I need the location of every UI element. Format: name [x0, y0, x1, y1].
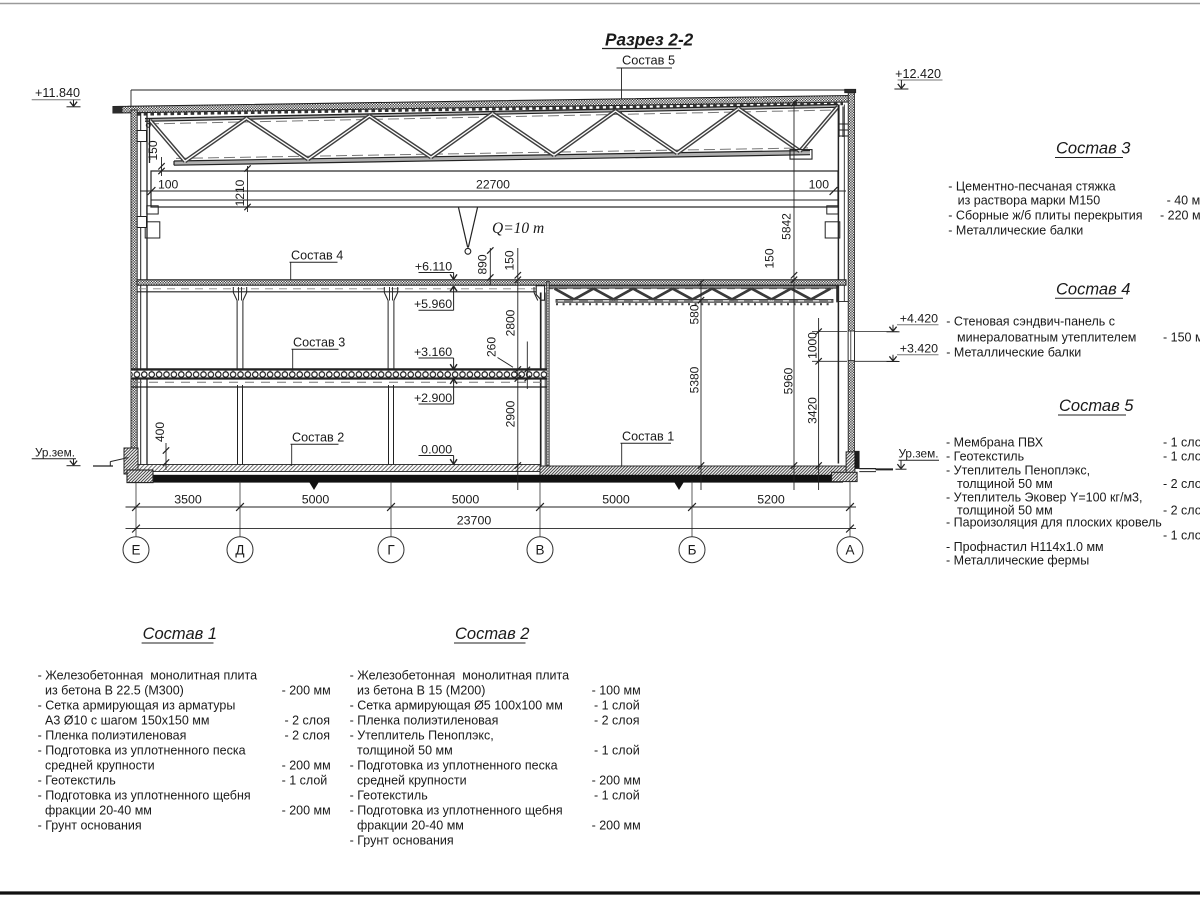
- svg-text:+3.160: +3.160: [414, 345, 452, 359]
- svg-text:5380: 5380: [688, 366, 702, 393]
- svg-text:фракции 20-40 мм: фракции 20-40 мм: [357, 819, 464, 833]
- svg-text:- 1 слой: - 1 слой: [1163, 449, 1200, 463]
- svg-text:100: 100: [809, 178, 830, 192]
- svg-text:Состав 3: Состав 3: [1056, 140, 1131, 158]
- svg-text:5200: 5200: [757, 492, 785, 506]
- svg-text:- 100 мм: - 100 мм: [592, 684, 641, 698]
- svg-text:890: 890: [476, 254, 490, 274]
- svg-text:Состав 5: Состав 5: [1059, 397, 1134, 415]
- svg-text:- Пленка полиэтиленовая: - Пленка полиэтиленовая: [350, 714, 499, 728]
- svg-text:- Стеновая сэндвич-панель с: - Стеновая сэндвич-панель с: [946, 315, 1115, 329]
- svg-text:- Грунт основания: - Грунт основания: [38, 819, 142, 833]
- svg-text:- Утеплитель Эковер Y=100 кг/м: - Утеплитель Эковер Y=100 кг/м3,: [946, 490, 1142, 504]
- svg-text:- 40 мм: - 40 мм: [1167, 194, 1200, 208]
- svg-text:- Подготовка из уплотненного щ: - Подготовка из уплотненного щебня: [350, 804, 563, 818]
- svg-text:- 200 мм: - 200 мм: [592, 819, 641, 833]
- svg-text:2800: 2800: [503, 309, 517, 336]
- svg-text:из бетона В 15 (М200): из бетона В 15 (М200): [357, 684, 485, 698]
- svg-text:Б: Б: [688, 543, 697, 558]
- svg-text:150: 150: [503, 250, 517, 270]
- svg-text:150: 150: [146, 140, 160, 160]
- svg-text:толщиной 50 мм: толщиной 50 мм: [357, 744, 453, 758]
- svg-text:Q=10 т: Q=10 т: [492, 220, 544, 237]
- svg-text:- 200 мм: - 200 мм: [282, 804, 331, 818]
- svg-text:- Пароизоляция для плоских кро: - Пароизоляция для плоских кровель: [946, 516, 1162, 530]
- svg-text:- Утеплитель Пеноплэкс,: - Утеплитель Пеноплэкс,: [946, 464, 1090, 478]
- svg-text:- 2 слоя: - 2 слоя: [285, 714, 330, 728]
- svg-text:- Металлические балки: - Металлические балки: [948, 224, 1083, 238]
- svg-text:260: 260: [485, 337, 499, 357]
- svg-text:толщиной 50 мм: толщиной 50 мм: [957, 477, 1053, 491]
- svg-text:5000: 5000: [602, 492, 630, 506]
- svg-text:Г: Г: [387, 543, 395, 558]
- svg-text:Д: Д: [235, 543, 244, 558]
- svg-text:+3.420: +3.420: [900, 341, 938, 355]
- svg-text:- Подготовка из уплотненного п: - Подготовка из уплотненного песка: [38, 744, 246, 758]
- svg-text:- Геотекстиль: - Геотекстиль: [946, 449, 1024, 463]
- svg-text:Ур.зем.: Ур.зем.: [898, 447, 938, 461]
- svg-text:- Сборные ж/б плиты перекрытия: - Сборные ж/б плиты перекрытия: [948, 208, 1142, 222]
- svg-text:5000: 5000: [452, 492, 480, 506]
- svg-text:- Геотекстиль: - Геотекстиль: [38, 774, 116, 788]
- svg-text:+11.840: +11.840: [35, 86, 80, 100]
- svg-text:150: 150: [763, 248, 777, 268]
- svg-text:- 1 слой: - 1 слой: [1163, 529, 1200, 543]
- svg-text:фракции 20-40 мм: фракции 20-40 мм: [45, 804, 152, 818]
- svg-text:- Профнастил Н114х1.0 мм: - Профнастил Н114х1.0 мм: [946, 540, 1104, 554]
- svg-text:Состав 1: Состав 1: [622, 430, 674, 444]
- svg-text:- 2 слоя: - 2 слоя: [1163, 477, 1200, 491]
- svg-text:Разрез 2-2: Разрез 2-2: [605, 30, 694, 50]
- svg-text:Е: Е: [131, 543, 140, 558]
- svg-text:- 1 слой: - 1 слой: [1163, 436, 1200, 450]
- svg-text:из раствора марки М150: из раствора марки М150: [958, 194, 1101, 208]
- svg-text:- Пленка полиэтиленовая: - Пленка полиэтиленовая: [38, 729, 187, 743]
- svg-text:Состав 4: Состав 4: [1056, 280, 1130, 298]
- svg-text:- 1 слой: - 1 слой: [594, 744, 640, 758]
- svg-text:- Геотекстиль: - Геотекстиль: [350, 789, 428, 803]
- svg-text:Состав 5: Состав 5: [622, 53, 675, 68]
- svg-text:средней крупности: средней крупности: [357, 774, 467, 788]
- svg-text:- 2 слоя: - 2 слоя: [1163, 503, 1200, 517]
- svg-text:1000: 1000: [806, 332, 820, 359]
- svg-text:- Сетка армирующая Ø5 100х100: - Сетка армирующая Ø5 100х100 мм: [350, 699, 563, 713]
- svg-text:100: 100: [158, 178, 179, 192]
- svg-text:А3 Ø10 с шагом 150х150 мм: А3 Ø10 с шагом 150х150 мм: [45, 714, 210, 728]
- svg-text:3420: 3420: [806, 397, 820, 424]
- svg-text:из бетона В 22.5 (М300): из бетона В 22.5 (М300): [45, 684, 184, 698]
- svg-text:2900: 2900: [503, 400, 517, 427]
- svg-text:- Металлические фермы: - Металлические фермы: [946, 553, 1089, 567]
- svg-text:5960: 5960: [782, 367, 796, 394]
- svg-text:Состав 2: Состав 2: [455, 625, 529, 643]
- svg-text:- Грунт основания: - Грунт основания: [350, 834, 454, 848]
- svg-text:- 1 слой: - 1 слой: [594, 789, 640, 803]
- svg-text:- Подготовка из уплотненного щ: - Подготовка из уплотненного щебня: [38, 789, 251, 803]
- svg-text:- Подготовка из уплотненного п: - Подготовка из уплотненного песка: [350, 759, 558, 773]
- svg-text:+2.900: +2.900: [414, 391, 452, 405]
- svg-text:А: А: [845, 543, 854, 558]
- svg-text:- 2 слоя: - 2 слоя: [285, 729, 330, 743]
- svg-text:- Железобетонная монолитная п: - Железобетонная монолитная плита: [350, 669, 569, 683]
- svg-text:В: В: [535, 543, 544, 558]
- svg-text:- Мембрана ПВХ: - Мембрана ПВХ: [946, 436, 1044, 450]
- svg-text:580: 580: [688, 304, 702, 324]
- svg-text:- Цементно-песчаная стяжка: - Цементно-песчаная стяжка: [948, 179, 1115, 193]
- svg-text:- Утеплитель Пеноплэкс,: - Утеплитель Пеноплэкс,: [350, 729, 494, 743]
- svg-text:Состав 2: Состав 2: [292, 431, 344, 445]
- svg-text:+6.110: +6.110: [415, 259, 452, 273]
- svg-text:23700: 23700: [457, 514, 492, 528]
- svg-text:+4.420: +4.420: [900, 311, 938, 325]
- svg-text:Состав 4: Состав 4: [291, 249, 343, 263]
- svg-text:- Железобетонная монолитная п: - Железобетонная монолитная плита: [38, 669, 257, 683]
- svg-text:- Сетка армирующая из арматуры: - Сетка армирующая из арматуры: [38, 699, 236, 713]
- svg-text:- 2 слоя: - 2 слоя: [594, 714, 639, 728]
- svg-text:Состав 1: Состав 1: [143, 625, 217, 643]
- svg-text:Ур.зем.: Ур.зем.: [35, 445, 75, 459]
- svg-text:+12.420: +12.420: [895, 67, 941, 81]
- svg-text:0.000: 0.000: [421, 442, 452, 456]
- svg-text:5000: 5000: [302, 492, 330, 506]
- svg-text:- 1 слой: - 1 слой: [282, 774, 328, 788]
- svg-text:- 200 мм: - 200 мм: [282, 684, 331, 698]
- svg-text:400: 400: [153, 422, 167, 442]
- svg-text:- 220 мм: - 220 мм: [1160, 208, 1200, 222]
- svg-text:3500: 3500: [174, 492, 202, 506]
- svg-text:1210: 1210: [233, 179, 247, 206]
- svg-text:Состав 3: Состав 3: [293, 336, 345, 350]
- svg-text:минераловатным утеплителем: минераловатным утеплителем: [957, 330, 1136, 344]
- svg-text:5842: 5842: [780, 213, 794, 240]
- svg-text:- Металлические балки: - Металлические балки: [946, 345, 1081, 359]
- svg-text:+5.960: +5.960: [414, 297, 452, 311]
- svg-text:средней крупности: средней крупности: [45, 759, 155, 773]
- svg-text:- 200 мм: - 200 мм: [592, 774, 641, 788]
- svg-text:- 1 слой: - 1 слой: [594, 699, 640, 713]
- svg-text:22700: 22700: [476, 178, 510, 192]
- svg-text:- 200 мм: - 200 мм: [282, 759, 331, 773]
- svg-text:- 150 мм: - 150 мм: [1163, 330, 1200, 344]
